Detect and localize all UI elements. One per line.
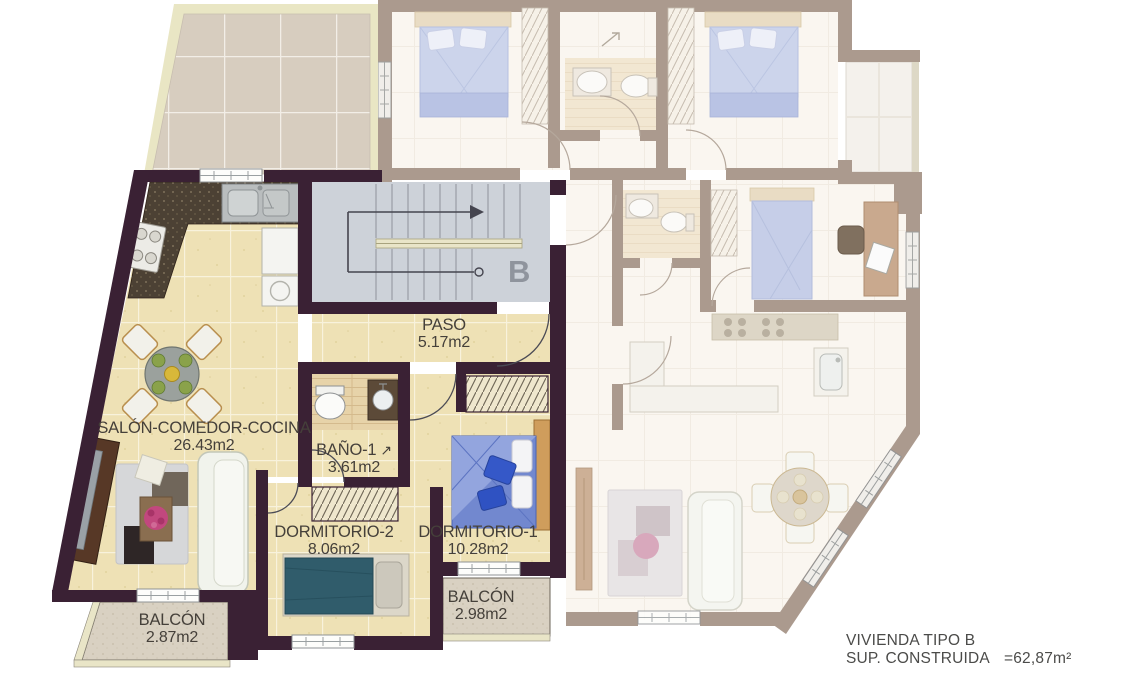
- terrace: [144, 4, 378, 174]
- wardrobe-dormitorio-1: [466, 376, 548, 412]
- neighbor-wardrobe-1: [522, 8, 548, 124]
- kitchen-appliances: [262, 228, 298, 306]
- neighbor-bed-double-2: [705, 12, 801, 117]
- coffee-table: [140, 497, 172, 541]
- room-label-balcon-left: BALCÓN 2.87m2: [139, 612, 206, 647]
- wardrobe-dormitorio-2: [312, 487, 398, 521]
- room-label-bano1: BAÑO-1↗ 3.61m2: [316, 442, 392, 477]
- neighbor-bed-double-1: [415, 12, 511, 117]
- bed-dormitorio-2: [283, 554, 409, 616]
- title-line1: VIVIENDA TIPO B: [846, 632, 1071, 650]
- room-label-salon: SALÓN-COMEDOR-COCINA 26.43m2: [97, 420, 310, 455]
- kitchen-sink: [222, 184, 302, 222]
- bed-dormitorio-1: [452, 420, 550, 530]
- floor-plan-drawing: [0, 0, 1125, 678]
- toilet: [315, 393, 345, 419]
- room-label-balcon-right: BALCÓN 2.98m2: [448, 589, 515, 624]
- sofa: [198, 452, 248, 594]
- neighbor-balcony: [846, 62, 919, 172]
- room-label-dormitorio1: DORMITORIO-1 10.28m2: [418, 524, 537, 559]
- title-line2: SUP. CONSTRUIDA=62,87m²: [846, 650, 1071, 668]
- room-label-dormitorio2: DORMITORIO-2 8.06m2: [274, 524, 393, 559]
- neighbor-bed-single: [750, 188, 814, 299]
- stairwell-unit-letter: B: [508, 256, 530, 287]
- door-swing-arrow-icon: ↗: [380, 442, 392, 458]
- title-block: VIVIENDA TIPO B SUP. CONSTRUIDA=62,87m²: [846, 632, 1071, 669]
- washbasin: [373, 390, 393, 410]
- floor-plan: SALÓN-COMEDOR-COCINA 26.43m2 PASO 5.17m2…: [0, 0, 1125, 678]
- neighbor-wardrobe-3: [711, 190, 737, 256]
- neighbor-wardrobe-2: [668, 8, 694, 124]
- room-label-paso: PASO 5.17m2: [418, 317, 470, 352]
